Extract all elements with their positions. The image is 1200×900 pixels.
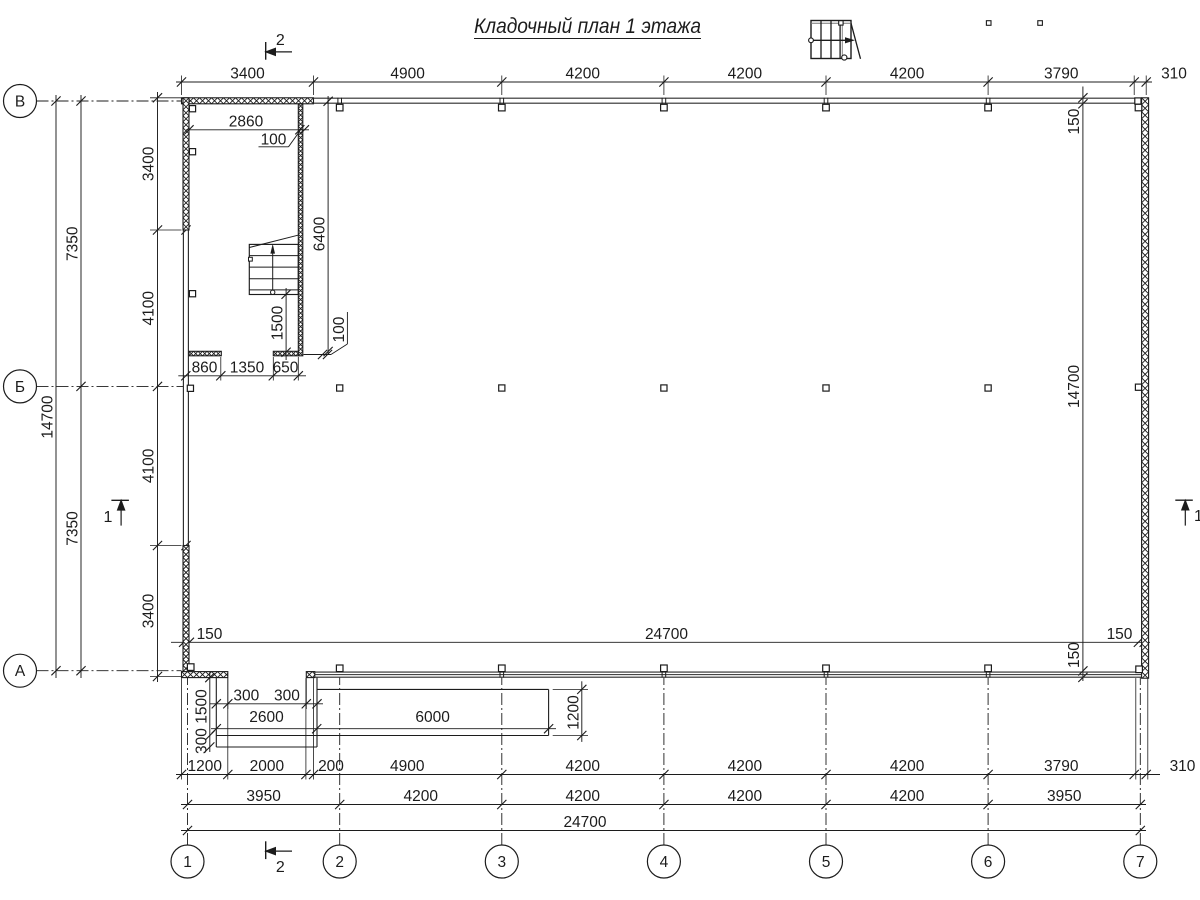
svg-text:1: 1 — [104, 509, 113, 526]
svg-text:3400: 3400 — [141, 146, 158, 181]
svg-text:24700: 24700 — [563, 814, 606, 831]
svg-text:1500: 1500 — [193, 689, 210, 724]
svg-text:24700: 24700 — [645, 626, 688, 643]
svg-text:310: 310 — [1161, 66, 1187, 83]
svg-text:150: 150 — [1066, 108, 1083, 134]
svg-text:7350: 7350 — [65, 226, 82, 261]
svg-text:300: 300 — [274, 687, 300, 704]
svg-text:2600: 2600 — [249, 709, 284, 726]
svg-text:860: 860 — [192, 359, 218, 376]
svg-text:300: 300 — [233, 687, 259, 704]
svg-text:14700: 14700 — [1066, 364, 1083, 407]
svg-text:4: 4 — [660, 854, 669, 871]
svg-text:4200: 4200 — [890, 788, 925, 805]
svg-text:300: 300 — [193, 728, 210, 754]
svg-text:4200: 4200 — [566, 66, 601, 83]
svg-text:4200: 4200 — [728, 788, 763, 805]
svg-text:4200: 4200 — [566, 788, 601, 805]
svg-text:3400: 3400 — [230, 66, 265, 83]
svg-text:150: 150 — [1107, 626, 1133, 643]
svg-text:1350: 1350 — [230, 359, 265, 376]
svg-text:Кладочный план 1 этажа: Кладочный план 1 этажа — [474, 14, 701, 38]
svg-text:4200: 4200 — [728, 758, 763, 775]
svg-text:1500: 1500 — [270, 305, 287, 340]
svg-text:А: А — [15, 663, 26, 680]
svg-text:5: 5 — [822, 854, 831, 871]
svg-text:3950: 3950 — [1047, 788, 1082, 805]
svg-text:2: 2 — [335, 854, 344, 871]
svg-text:6400: 6400 — [312, 216, 329, 251]
svg-text:3790: 3790 — [1044, 66, 1079, 83]
svg-text:6: 6 — [984, 854, 993, 871]
svg-text:4900: 4900 — [390, 66, 425, 83]
svg-text:4200: 4200 — [566, 758, 601, 775]
svg-text:1: 1 — [1194, 508, 1200, 525]
svg-text:4900: 4900 — [390, 758, 425, 775]
svg-text:3950: 3950 — [246, 788, 281, 805]
svg-text:4200: 4200 — [403, 788, 438, 805]
svg-text:1: 1 — [183, 854, 192, 871]
svg-text:2860: 2860 — [229, 113, 264, 130]
svg-text:310: 310 — [1170, 758, 1196, 775]
svg-text:3: 3 — [497, 854, 506, 871]
svg-text:200: 200 — [318, 758, 344, 775]
svg-text:1200: 1200 — [188, 758, 223, 775]
svg-text:4200: 4200 — [728, 66, 763, 83]
svg-text:4100: 4100 — [141, 448, 158, 483]
svg-text:100: 100 — [261, 132, 287, 149]
svg-text:В: В — [15, 94, 25, 111]
svg-text:6000: 6000 — [415, 709, 450, 726]
svg-text:7350: 7350 — [65, 511, 82, 546]
svg-text:4100: 4100 — [141, 291, 158, 326]
svg-text:3790: 3790 — [1044, 758, 1079, 775]
svg-text:2: 2 — [276, 32, 285, 49]
svg-text:1200: 1200 — [565, 695, 582, 730]
svg-text:3400: 3400 — [141, 593, 158, 628]
svg-text:2: 2 — [276, 859, 285, 876]
svg-text:4200: 4200 — [890, 66, 925, 83]
svg-text:150: 150 — [1066, 642, 1083, 668]
svg-text:150: 150 — [197, 626, 223, 643]
svg-text:7: 7 — [1136, 854, 1145, 871]
svg-text:14700: 14700 — [40, 395, 57, 438]
svg-text:650: 650 — [273, 359, 299, 376]
svg-text:Б: Б — [15, 379, 25, 396]
svg-text:4200: 4200 — [890, 758, 925, 775]
svg-text:2000: 2000 — [250, 758, 285, 775]
svg-text:100: 100 — [331, 316, 348, 342]
